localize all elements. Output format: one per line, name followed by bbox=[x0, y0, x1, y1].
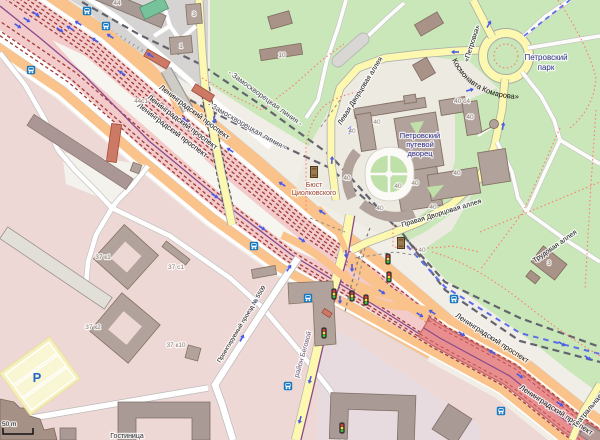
svg-text:37 к10: 37 к10 bbox=[166, 342, 185, 349]
svg-text:1: 1 bbox=[179, 43, 183, 50]
svg-text:37 к2: 37 к2 bbox=[85, 324, 101, 331]
svg-text:40: 40 bbox=[394, 183, 402, 190]
svg-text:Петровский: Петровский bbox=[400, 131, 440, 140]
svg-text:40 с4: 40 с4 bbox=[454, 98, 470, 105]
svg-text:40: 40 bbox=[418, 247, 426, 254]
svg-text:40: 40 bbox=[343, 175, 351, 182]
svg-text:дворец: дворец bbox=[407, 149, 433, 158]
svg-text:3: 3 bbox=[192, 11, 196, 18]
svg-text:37 к1: 37 к1 bbox=[95, 254, 111, 261]
svg-text:44с1: 44с1 bbox=[134, 98, 148, 105]
svg-text:40: 40 bbox=[466, 114, 474, 121]
svg-text:40: 40 bbox=[376, 205, 384, 212]
svg-text:40: 40 bbox=[453, 170, 461, 177]
svg-text:путевой: путевой bbox=[406, 140, 434, 149]
svg-text:40: 40 bbox=[373, 119, 381, 126]
svg-text:40: 40 bbox=[348, 128, 356, 135]
svg-text:Бюст: Бюст bbox=[306, 182, 323, 189]
svg-text:Гостиница: Гостиница bbox=[110, 433, 144, 440]
svg-text:3: 3 bbox=[547, 260, 551, 267]
svg-text:Петровский: Петровский bbox=[524, 53, 567, 62]
svg-text:P: P bbox=[33, 370, 42, 385]
svg-text:10: 10 bbox=[278, 52, 286, 59]
svg-text:44: 44 bbox=[113, 0, 121, 7]
svg-text:40: 40 bbox=[411, 180, 419, 187]
svg-text:50 m: 50 m bbox=[2, 421, 16, 428]
svg-text:Циолковского: Циолковского bbox=[292, 190, 337, 197]
svg-text:40: 40 bbox=[429, 204, 437, 211]
svg-text:парк: парк bbox=[538, 63, 555, 72]
svg-text:37 с1: 37 с1 bbox=[168, 264, 184, 271]
